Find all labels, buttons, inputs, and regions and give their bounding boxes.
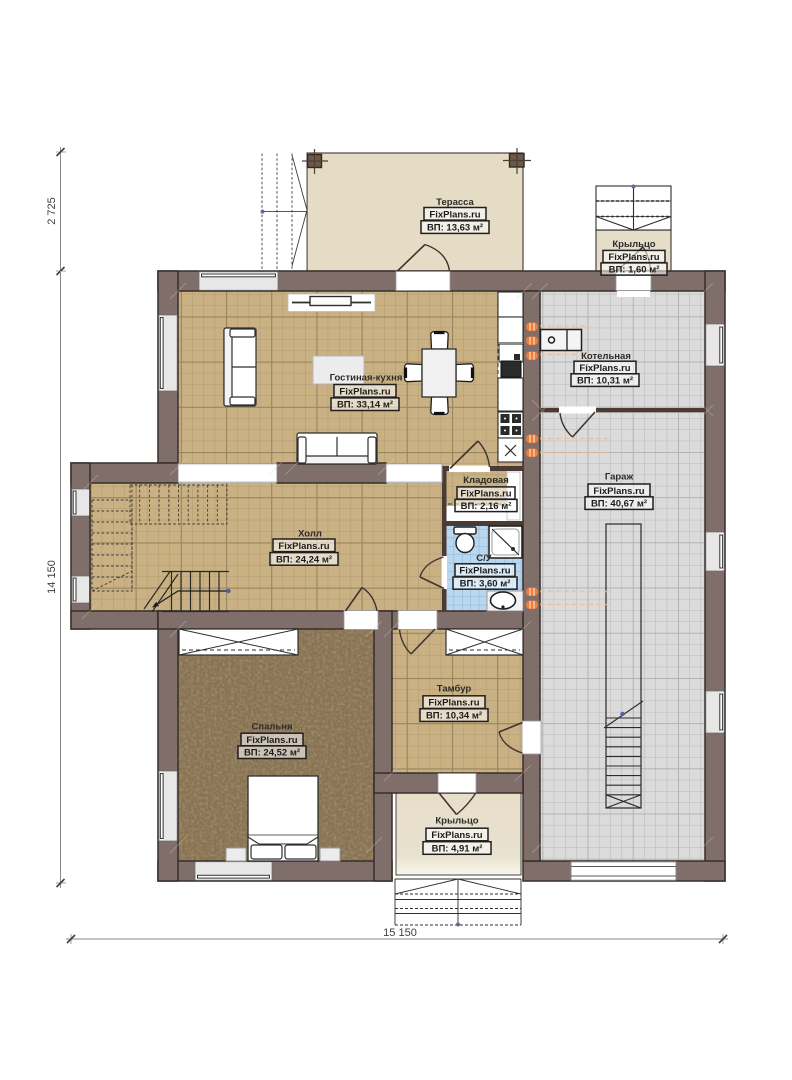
svg-text:ВП: 24,24 м²: ВП: 24,24 м²	[276, 554, 332, 565]
svg-text:14 150: 14 150	[46, 560, 58, 594]
svg-text:ВП: 1,60 м²: ВП: 1,60 м²	[609, 264, 660, 275]
svg-text:Холл: Холл	[298, 529, 322, 540]
svg-text:Гостиная-кухня: Гостиная-кухня	[330, 373, 403, 384]
svg-text:ВП: 40,67 м²: ВП: 40,67 м²	[591, 499, 647, 510]
svg-text:Крыльцо: Крыльцо	[612, 239, 655, 250]
svg-text:FixPlans.ru: FixPlans.ru	[608, 252, 659, 263]
svg-text:FixPlans.ru: FixPlans.ru	[579, 363, 630, 374]
svg-text:FixPlans.ru: FixPlans.ru	[246, 735, 297, 746]
svg-text:FixPlans.ru: FixPlans.ru	[428, 698, 479, 709]
svg-text:Котельная: Котельная	[581, 351, 631, 362]
svg-text:FixPlans.ru: FixPlans.ru	[593, 486, 644, 497]
svg-text:С/У: С/У	[476, 553, 492, 564]
svg-text:15 150: 15 150	[383, 927, 417, 939]
svg-text:FixPlans.ru: FixPlans.ru	[339, 386, 390, 397]
svg-text:Кладовая: Кладовая	[463, 475, 509, 486]
svg-text:Терасса: Терасса	[436, 197, 474, 208]
svg-text:FixPlans.ru: FixPlans.ru	[278, 541, 329, 552]
svg-text:FixPlans.ru: FixPlans.ru	[459, 566, 510, 577]
svg-text:FixPlans.ru: FixPlans.ru	[431, 830, 482, 841]
svg-text:ВП: 4,91 м²: ВП: 4,91 м²	[432, 844, 483, 855]
svg-text:ВП: 10,34 м²: ВП: 10,34 м²	[426, 711, 482, 722]
svg-text:Гараж: Гараж	[605, 472, 634, 483]
svg-text:ВП: 3,60 м²: ВП: 3,60 м²	[460, 579, 511, 590]
svg-text:FixPlans.ru: FixPlans.ru	[429, 209, 480, 220]
svg-text:ВП: 10,31 м²: ВП: 10,31 м²	[577, 376, 633, 387]
svg-text:2 725: 2 725	[46, 197, 58, 225]
svg-text:ВП: 33,14 м²: ВП: 33,14 м²	[337, 400, 393, 411]
svg-text:ВП: 2,16 м²: ВП: 2,16 м²	[461, 501, 512, 512]
svg-text:ВП: 24,52 м²: ВП: 24,52 м²	[244, 748, 300, 759]
svg-text:FixPlans.ru: FixPlans.ru	[460, 488, 511, 499]
svg-text:Тамбур: Тамбур	[437, 684, 472, 695]
svg-text:Спальня: Спальня	[251, 722, 292, 733]
svg-text:Крыльцо: Крыльцо	[435, 816, 478, 827]
svg-text:ВП: 13,63 м²: ВП: 13,63 м²	[427, 223, 483, 234]
